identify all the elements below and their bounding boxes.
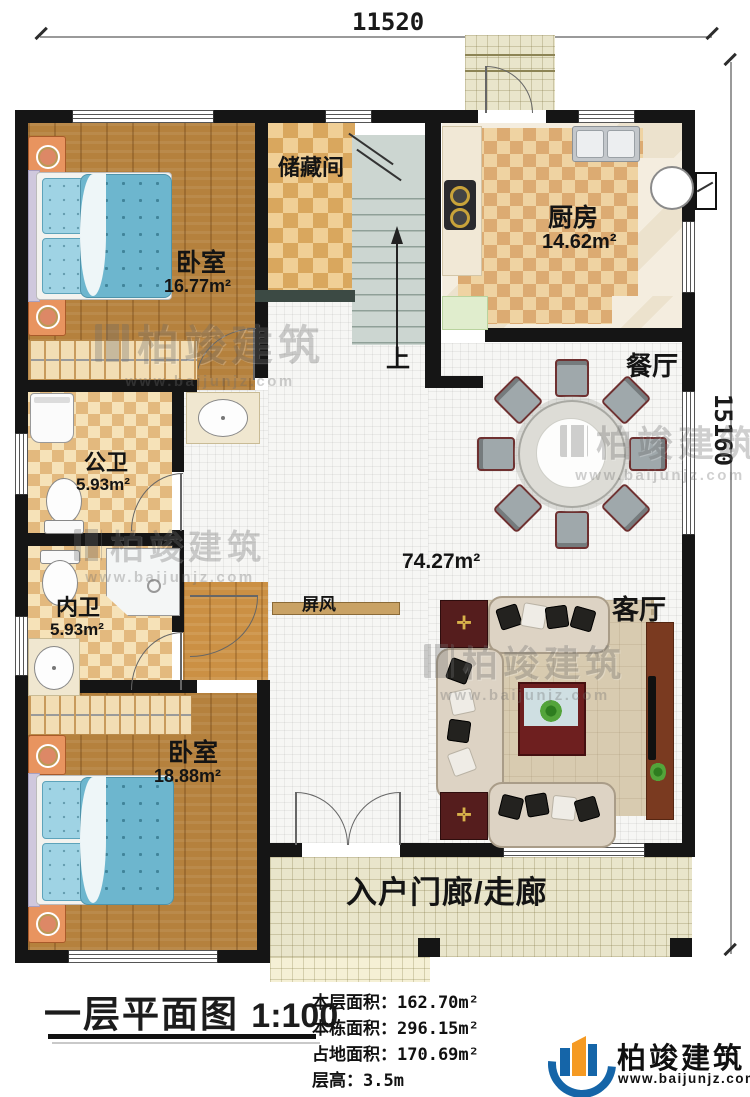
bedroom2-label: 卧室 <box>168 740 218 768</box>
floor-plan-canvas: 11520 15160 <box>0 0 750 1097</box>
kitchen-bottom-wall <box>485 328 682 342</box>
bedroom2-right-wall <box>257 680 270 963</box>
porch-step <box>270 957 430 982</box>
bedroom1-area: 16.77m² <box>164 277 231 297</box>
dining-top-wall-stub <box>425 376 483 388</box>
tv-screen <box>648 676 656 760</box>
toilet-tank <box>44 520 84 534</box>
storage-bottom-wall <box>255 290 355 302</box>
dining-chair <box>555 511 589 549</box>
bath-middle-wall <box>15 533 183 546</box>
pillow <box>42 238 84 294</box>
bedroom2-area: 18.88m² <box>154 767 221 787</box>
stairs-up-label: 上 <box>386 347 410 373</box>
small-plant <box>650 762 666 782</box>
nightstand <box>28 903 66 943</box>
hall-area: 74.27m² <box>402 550 480 573</box>
side-table <box>440 600 488 648</box>
step-line <box>465 70 555 72</box>
burner <box>450 208 470 228</box>
pillow <box>42 178 84 234</box>
side-table <box>440 792 488 840</box>
brand-logo-building <box>588 1044 597 1076</box>
sofa-cushion <box>520 602 548 630</box>
info-label: 本层面积： <box>312 993 397 1012</box>
kitchen-window <box>578 110 635 123</box>
public-bath-area: 5.93m² <box>76 476 130 495</box>
living-bottom-wall <box>643 843 695 857</box>
brand-url: www.baijunjz.com <box>618 1071 750 1086</box>
bedroom1-bottom-wall <box>15 378 197 392</box>
info-floor-height: 层高：3.5m <box>312 1066 404 1091</box>
bedroom1-right-wall <box>255 110 268 378</box>
stair-arrow-head <box>391 226 403 244</box>
bathroom-sink <box>34 646 74 690</box>
info-footprint-area: 占地面积：170.69m² <box>312 1040 479 1065</box>
bath-right-wall <box>172 390 184 472</box>
storage-label: 储藏间 <box>278 156 344 180</box>
wardrobe <box>28 695 192 735</box>
kitchen-area: 14.62m² <box>542 231 617 253</box>
main-door-left-leaf <box>295 792 297 845</box>
title-underline <box>48 1034 316 1039</box>
bedroom2-door-leaf <box>190 595 258 597</box>
burner <box>450 186 470 206</box>
kitchen-label: 厨房 <box>548 205 598 233</box>
sofa-cushion <box>545 605 570 630</box>
info-value: 162.70m² <box>397 993 479 1013</box>
info-value: 3.5m <box>363 1071 404 1091</box>
right-dimension-line <box>730 62 732 954</box>
stair-right-wall <box>425 110 441 388</box>
fridge-mat <box>442 296 488 330</box>
sink-bowl <box>607 130 635 158</box>
screen-partition <box>272 602 400 615</box>
sofa-cushion <box>551 795 577 821</box>
pillow <box>42 843 84 901</box>
dining-chair <box>477 437 515 471</box>
dining-right-window <box>682 391 695 535</box>
pillow <box>42 781 84 839</box>
storage-floor <box>268 123 355 290</box>
porch-label: 入户门廊/走廊 <box>346 876 548 910</box>
living-bottom-wall <box>400 843 503 857</box>
info-label: 占地面积： <box>312 1045 397 1064</box>
bedroom2-window <box>68 950 218 963</box>
inner-bath-door-leaf <box>180 632 182 690</box>
shower-enclosure <box>106 548 180 616</box>
plan-title-text: 一层平面图 <box>44 994 239 1035</box>
hall-basin <box>198 399 248 437</box>
info-label: 本栋面积： <box>312 1019 397 1038</box>
top-dimension-value: 11520 <box>352 8 424 36</box>
quilt-fold <box>80 174 106 296</box>
sofa-cushion <box>524 792 549 817</box>
inner-bath-area: 5.93m² <box>50 621 104 640</box>
nightstand <box>28 296 66 336</box>
dining-chair <box>555 359 589 397</box>
title-underline-shadow <box>52 1042 320 1044</box>
quilt-fold <box>80 777 106 903</box>
info-value: 296.15m² <box>397 1019 479 1039</box>
screen-label: 屏风 <box>302 596 336 615</box>
info-building-area: 本栋面积：296.15m² <box>312 1014 479 1039</box>
nightstand <box>28 735 66 775</box>
public-bath-door-leaf <box>180 473 182 531</box>
potted-plant <box>540 700 562 722</box>
info-label: 层高： <box>312 1071 363 1090</box>
kitchen-tile-patch <box>612 296 682 328</box>
step-line <box>465 54 555 56</box>
public-bath-window <box>15 433 28 495</box>
bedroom1-door-leaf <box>253 328 255 380</box>
storage-window <box>325 110 372 123</box>
top-dimension-line <box>40 36 712 38</box>
porch-pillar <box>418 938 440 957</box>
sofa-cushion <box>447 719 472 744</box>
sink-bowl <box>576 130 604 158</box>
dining-label: 餐厅 <box>626 352 678 381</box>
bedroom1-window <box>72 110 214 123</box>
public-bath-label: 公卫 <box>84 451 128 475</box>
plan-title: 一层平面图 1:100 <box>44 984 338 1038</box>
brand-logo-building <box>560 1048 570 1076</box>
info-value: 170.69m² <box>397 1045 479 1065</box>
inner-bath-label: 内卫 <box>56 596 100 620</box>
kitchen-right-window <box>682 221 695 293</box>
dimension-tick <box>705 27 718 40</box>
washing-machine <box>30 393 74 443</box>
dining-chair <box>629 437 667 471</box>
hall-bottom-wall <box>270 843 302 857</box>
kitchen-round-basin <box>650 166 694 210</box>
sofa-cushion <box>448 688 476 716</box>
bedroom1-label: 卧室 <box>176 250 226 278</box>
living-label: 客厅 <box>612 596 666 626</box>
info-floor-area: 本层面积：162.70m² <box>312 988 479 1013</box>
inner-bath-window <box>15 616 28 676</box>
right-dimension-value: 15160 <box>709 393 737 467</box>
wardrobe <box>28 340 198 380</box>
stair-treads <box>352 198 428 345</box>
dining-table-top <box>536 418 606 488</box>
main-door-right-leaf <box>399 792 401 845</box>
porch-pillar <box>670 938 692 957</box>
top-entry-door-leaf <box>485 66 487 113</box>
